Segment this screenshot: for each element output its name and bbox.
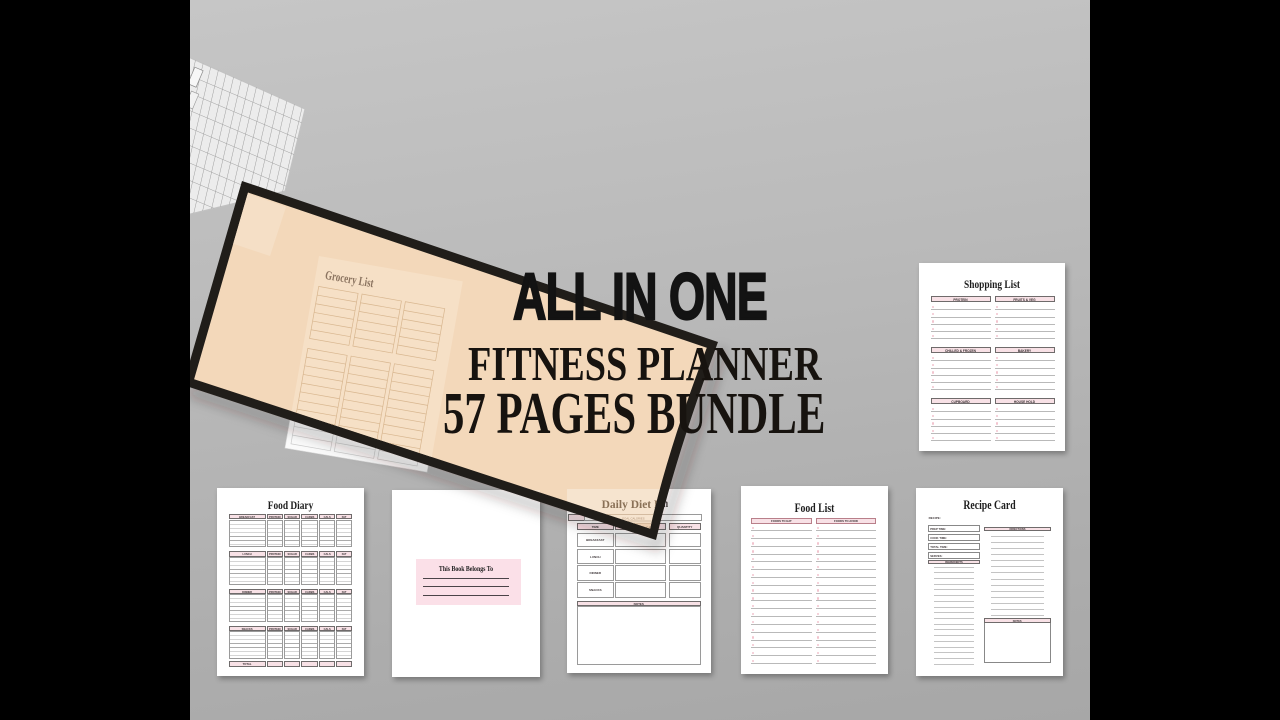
svg-text:GOAL CALORIES: GOAL CALORIES <box>622 517 645 521</box>
